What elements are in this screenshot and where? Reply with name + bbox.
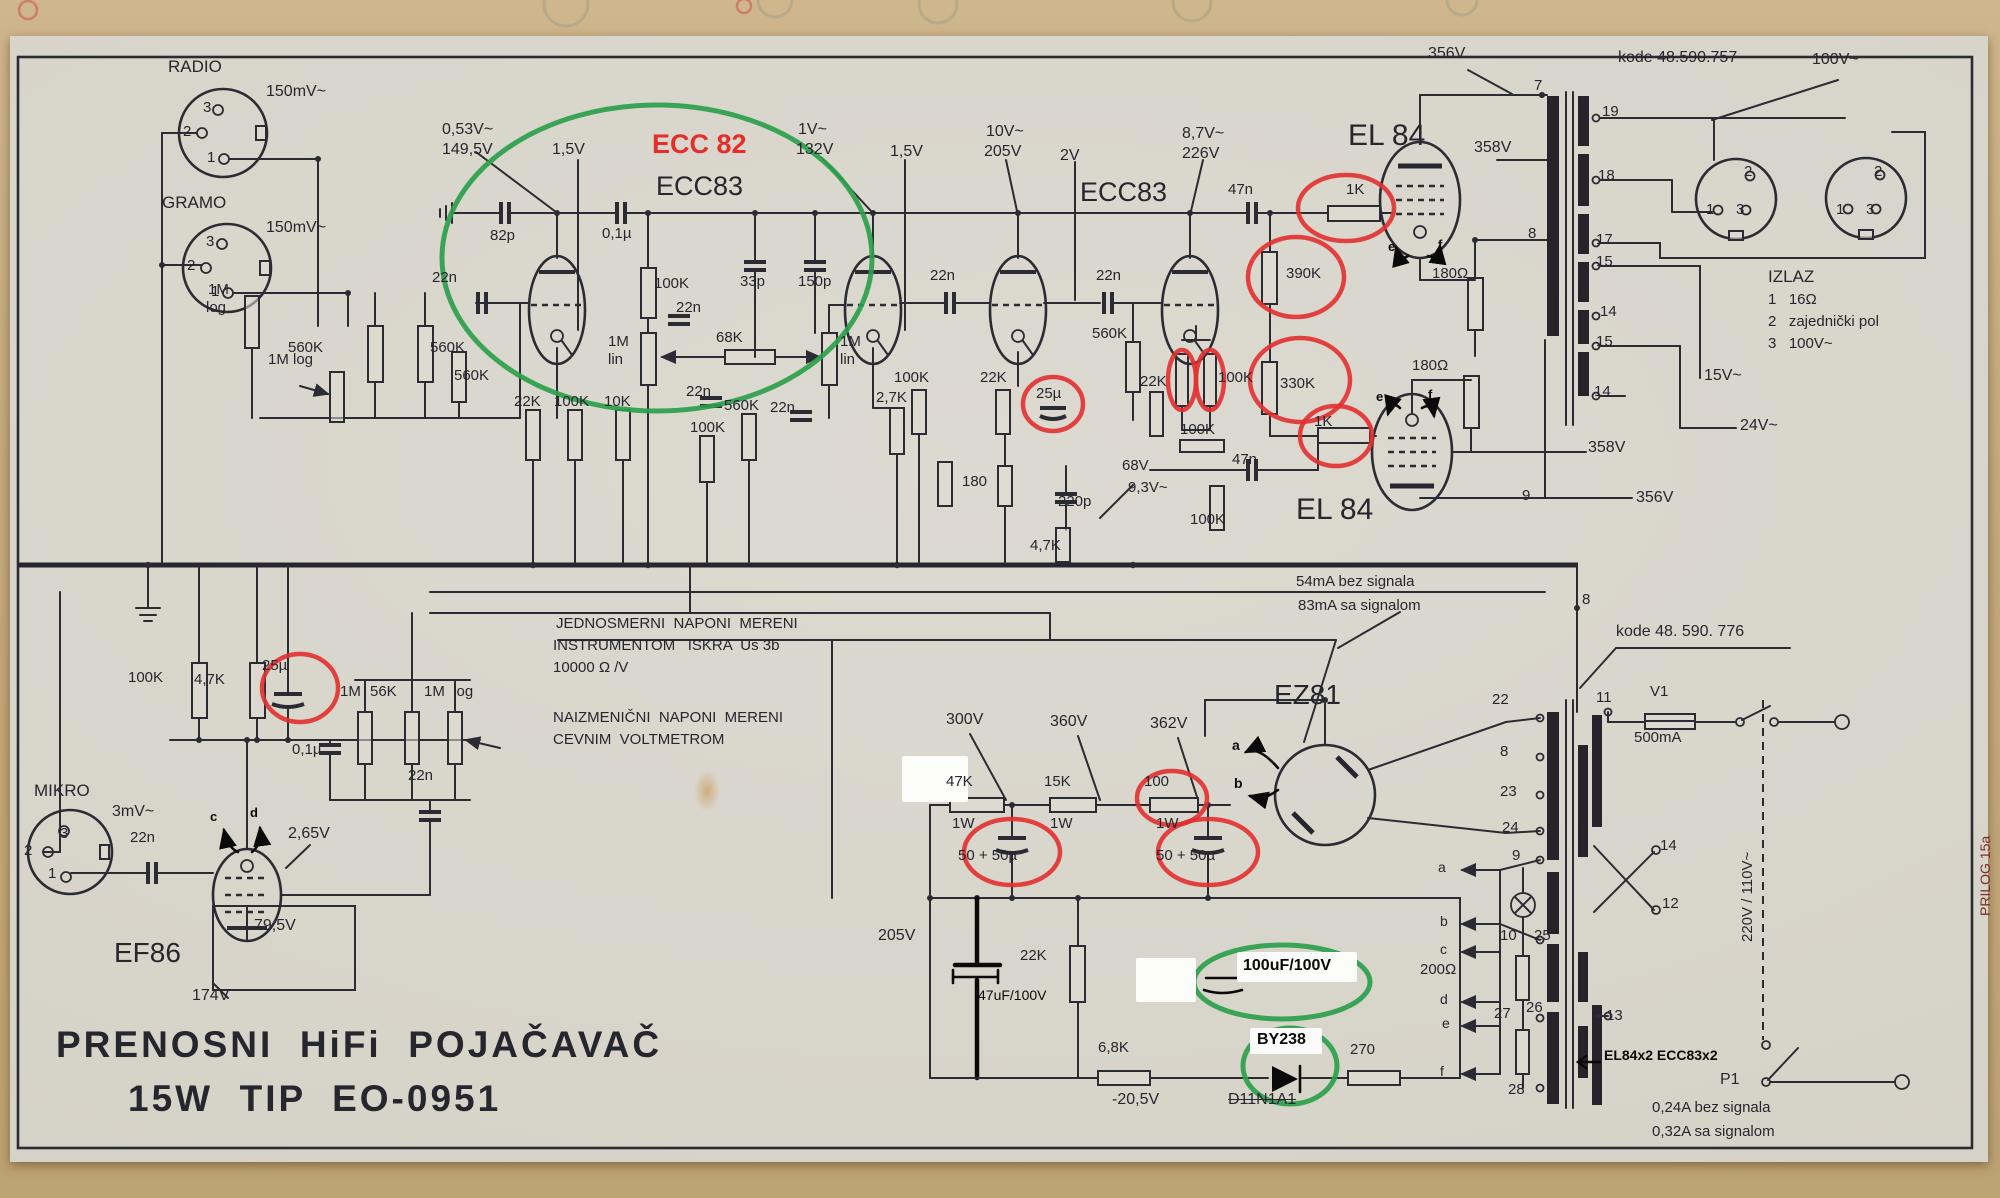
v-205a: 205V [984,144,1021,161]
schematic-label: 14 [1600,304,1617,320]
schematic-label: 330K [1280,376,1315,392]
schematic-label: 22K [1140,374,1167,390]
schematic-label: 0,1µ [292,742,322,758]
schematic-label: 560K [430,340,465,356]
v-15a: 1,5V [552,142,585,159]
v-265: 2,65V [288,826,330,843]
tube-label-el84-2: EL 84 [1296,494,1373,525]
schematic-label: 22n [930,268,955,284]
izlaz-title: IZLAZ [1768,268,1814,286]
v-356b: 356V [1636,490,1673,507]
schematic-label: 26 [1526,1000,1543,1016]
schematic-drawing [0,0,2000,1198]
note-ac-1: NAIZMENIČNI NAPONI MERENI [553,710,783,726]
radio-label: RADIO [168,58,222,76]
current-note-2: 83mA sa signalom [1298,598,1421,614]
schematic-label: 100K [1190,512,1225,528]
ecc82-annotation: ECC 82 [652,130,747,158]
old-diode-label: D11N1A1 [1228,1092,1296,1109]
schematic-label: 220p [1058,494,1091,510]
v-neg205: -20,5V [1112,1092,1159,1109]
out2-pin-1: 1 [1836,202,1844,218]
schematic-label: 7 [1534,78,1542,94]
v-358a: 358V [1474,140,1511,157]
schematic-label: 23 [1500,784,1517,800]
annot-el84x2: EL84x2 ECC83x2 [1604,1048,1718,1063]
kode-776: kode 48. 590. 776 [1616,624,1744,641]
v-10v: 10V~ [986,124,1024,141]
schematic-label: 100K [894,370,929,386]
izlaz-1: 1 16Ω [1768,292,1817,308]
schematic-label: 180Ω [1412,358,1448,374]
el84-tubes [1262,70,1632,510]
v-226: 226V [1182,146,1219,163]
schematic-label: 2,7K [876,390,907,406]
schematic-label: 25 [1534,928,1551,944]
schematic-label: 18 [1598,168,1615,184]
schematic-label: 1M [840,334,861,350]
schematic-label: lin [608,352,623,368]
title-line2: 15W TIP EO-0951 [128,1080,501,1118]
mains-voltage: 220V / 110V~ [1740,852,1756,942]
hand-a: a [1232,738,1240,753]
schematic-label: 50 + 50µ [958,848,1017,864]
schematic-label: a [1438,860,1446,875]
mikro-pin-1: 1 [48,866,56,882]
switch-p1: P1 [1720,1072,1740,1089]
schematic-label: 22K [1020,948,1047,964]
izlaz-3: 3 100V~ [1768,336,1833,352]
schematic-label: 8 [1528,226,1536,242]
v-174: 174V [192,988,229,1005]
v-205b: 205V [878,928,915,945]
schematic-label: 25µ [1036,386,1061,402]
schematic-label: 4,7K [194,672,225,688]
out1-pin-3: 3 [1736,202,1744,218]
mikro-level: 3mV~ [112,804,154,821]
hand-c: c [210,810,217,824]
current-note-4: 0,32A sa signalom [1652,1124,1775,1140]
paper-stain [694,770,720,812]
schematic-label: 22K [514,394,541,410]
title-line1: PRENOSNI HiFi POJAČAVAČ [56,1026,662,1064]
tube-label-ez81: EZ81 [1274,680,1341,709]
note-dc-1: JEDNOSMERNI NAPONI MERENI [556,616,798,632]
hand-d: d [250,806,258,820]
v-2v: 2V [1060,148,1080,165]
schematic-label: 8 [1582,592,1590,608]
schematic-label: e [1442,1016,1450,1031]
hand-e-1: e [1388,240,1395,254]
gramo-pin-2: 2 [187,258,195,274]
schematic-label: log [206,300,226,316]
photo-background: RADIO150mV~321GRAMO150mV~321MIKRO3mV~231… [0,0,2000,1198]
v-356a: 356V [1428,46,1465,63]
whiteout-patch [1136,958,1196,1002]
v-68: 68V [1122,458,1149,474]
v-132: 132V [796,142,833,159]
mikro-pin-2: 2 [24,843,32,859]
annot-100uf: 100uF/100V [1243,958,1331,975]
prilog-note: PRILOG 15a [1978,836,1993,916]
izlaz-2: 2 zajednički pol [1768,314,1879,330]
schematic-label: 12 [1662,896,1679,912]
radio-pin-1: 1 [207,150,215,166]
schematic-label: 9 [1522,488,1530,504]
v-87: 8,7V~ [1182,126,1224,143]
schematic-label: 22n [1096,268,1121,284]
schematic-label: 1M [608,334,629,350]
schematic-label: 100K [1218,370,1253,386]
input-connectors [28,89,271,894]
schematic-label: 82p [490,228,515,244]
schematic-label: 180Ω [1432,266,1468,282]
hand-b: b [1234,776,1243,791]
schematic-label: 100K [654,276,689,292]
schematic-label: 1K [1346,182,1364,198]
tube-label-el84-1: EL 84 [1348,120,1425,151]
schematic-label: 22n [130,830,155,846]
v-795: 79,5V [254,918,296,935]
schematic-label: c [1440,942,1447,957]
schematic-label: 15K [1044,774,1071,790]
schematic-label: 1M [340,684,361,700]
schematic-label: 56K [370,684,397,700]
gramo-label: GRAMO [162,194,226,212]
note-ac-2: CEVNIM VOLTMETROM [553,732,724,748]
schematic-label: 560K [1092,326,1127,342]
v-93: 9,3V~ [1128,480,1168,496]
schematic-label: 1K [1314,414,1332,430]
schematic-label: 1W [952,816,975,832]
schematic-label: 100K [128,670,163,686]
schematic-label: 27 [1494,1006,1511,1022]
schematic-label: 14 [1660,838,1677,854]
current-note-1: 54mA bez signala [1296,574,1414,590]
schematic-label: 100K [1180,422,1215,438]
schematic-label: 28 [1508,1082,1525,1098]
out2-pin-2: 2 [1874,164,1882,180]
schematic-label: 50 + 50µ [1156,848,1215,864]
schematic-label: 14 [1594,384,1611,400]
schematic-label: 13 [1606,1008,1623,1024]
power-supply [930,700,1506,1092]
schematic-label: 500mA [1634,730,1682,746]
schematic-label: 33p [740,274,765,290]
hand-e-2: e [1376,390,1383,404]
schematic-label: 25µ [262,658,287,674]
schematic-label: 9 [1512,848,1520,864]
v-358b: 358V [1588,440,1625,457]
schematic-label: 6,8K [1098,1040,1129,1056]
schematic-label: 47n [1232,452,1257,468]
schematic-label: 560K [454,368,489,384]
schematic-label: 150p [798,274,831,290]
v-1495: 149,5V [442,142,493,159]
tube-label-ecc83-2: ECC83 [1080,178,1167,206]
schematic-label: 1W [1050,816,1073,832]
schematic-label: 0,1µ [602,226,632,242]
schematic-label: 47K [946,774,973,790]
schematic-label: 100K [690,420,725,436]
schematic-label: b [1440,914,1448,929]
schematic-label: 1M [208,282,229,298]
kode-757: kode 48.590.757 [1618,50,1737,67]
out1-pin-1: 1 [1706,202,1714,218]
v-1v: 1V~ [798,122,827,139]
v-15b: 1,5V [890,144,923,161]
schematic-label: 22K [980,370,1007,386]
schematic-label: d [1440,992,1448,1007]
out1-pin-2: 2 [1744,164,1752,180]
schematic-label: 22 [1492,692,1509,708]
schematic-label: 1M log [268,352,313,368]
schematic-label: 22n [770,400,795,416]
annot-47uf: 47uF/100V [978,988,1047,1003]
v-15v: 15V~ [1704,368,1742,385]
radio-level: 150mV~ [266,84,326,101]
schematic-label: 4,7K [1030,538,1061,554]
radio-pin-2: 2 [183,124,191,140]
schematic-label: lin [840,352,855,368]
v-24v: 24V~ [1740,418,1778,435]
schematic-label: 22n [676,300,701,316]
schematic-label: 200Ω [1420,962,1456,978]
schematic-label: 10 [1500,928,1517,944]
schematic-label: 560K [724,398,759,414]
tube-label-ef86: EF86 [114,938,181,967]
schematic-label: V1 [1650,684,1668,700]
schematic-label: 1W [1156,816,1179,832]
current-note-3: 0,24A bez signala [1652,1100,1770,1116]
schematic-label: 10K [604,394,631,410]
schematic-label: 100K [554,394,589,410]
v-300: 300V [946,712,983,729]
schematic-label: 100 [1144,774,1169,790]
schematic-label: 390K [1286,266,1321,282]
tube-label-ecc83-1: ECC83 [656,172,743,200]
output-transformer [1539,80,1925,498]
schematic-label: 15 [1596,254,1613,270]
schematic-label: f [1440,1064,1444,1079]
schematic-label: 11 [1596,690,1612,706]
mains-transformer [1462,648,1909,1108]
mikro-label: MIKRO [34,782,90,800]
annot-by238: BY238 [1257,1032,1306,1049]
v-362: 362V [1150,716,1187,733]
note-dc-2: INSTRUMENTOM ISKRA Us 3b [553,638,779,654]
hand-f-1: f [1438,238,1442,252]
schematic-label: 22n [408,768,433,784]
schematic-label: 15 [1596,334,1613,350]
schematic-label: 1M log [424,684,473,700]
gramo-pin-3: 3 [206,234,214,250]
schematic-label: 47n [1228,182,1253,198]
top-strip-ghosts [19,0,1477,26]
schematic-label: 8 [1500,744,1508,760]
schematic-label: 22n [432,270,457,286]
v-100v-top: 100V~ [1812,52,1859,69]
schematic-label: 68K [716,330,743,346]
hand-f-2: f [1428,388,1432,402]
v-360: 360V [1050,714,1087,731]
schematic-label: 270 [1350,1042,1375,1058]
schematic-label: 22n [686,384,711,400]
schematic-label: 24 [1502,820,1519,836]
gramo-level: 150mV~ [266,220,326,237]
schematic-label: 19 [1602,104,1619,120]
note-dc-3: 10000 Ω /V [553,660,628,676]
schematic-label: 180 [962,474,987,490]
schematic-label: 17 [1596,232,1613,248]
mikro-pin-3: 3 [60,826,68,842]
v-053: 0,53V~ [442,122,493,139]
out2-pin-3: 3 [1866,202,1874,218]
radio-pin-3: 3 [203,100,211,116]
